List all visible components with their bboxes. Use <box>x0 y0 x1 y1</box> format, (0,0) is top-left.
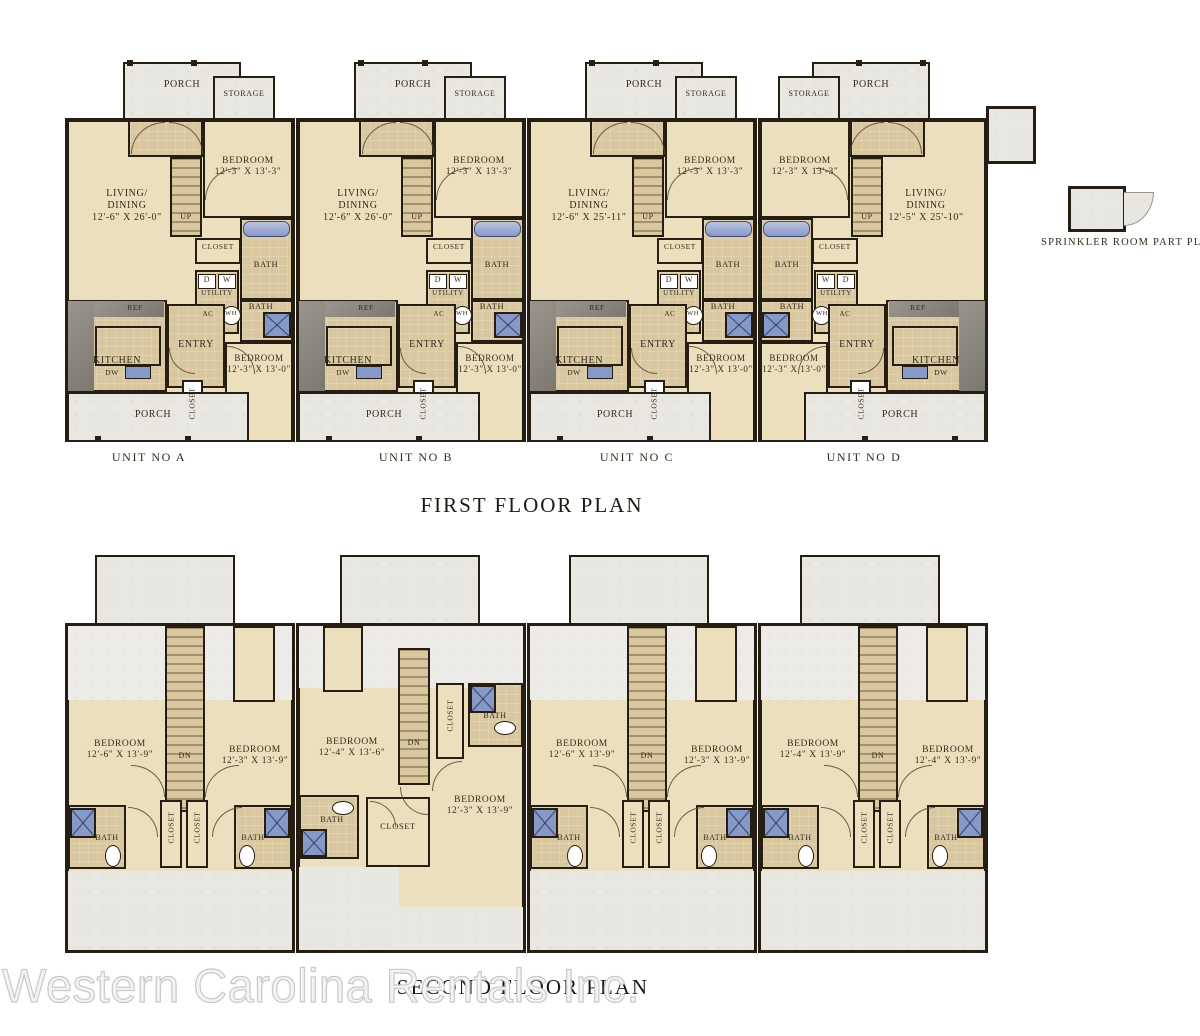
porch-rear-label: PORCH <box>309 409 459 421</box>
porch-rear-label-line: PORCH <box>540 409 690 421</box>
bedroom-wing <box>233 626 275 702</box>
dw-label: DW <box>37 368 187 377</box>
bedroom-left-label-line: BEDROOM <box>45 739 195 750</box>
closet-lower-label-line: CLOSET <box>323 821 473 831</box>
utility-label-line: UTILITY <box>373 289 523 297</box>
ref-label-line: REF <box>291 303 441 312</box>
porch-post <box>589 60 595 66</box>
attic-space <box>68 626 165 700</box>
door-arc <box>1124 192 1154 226</box>
bedroom-1-label-line: 12'-3" X 13'-3" <box>730 167 880 178</box>
bedroom-left-label-line: BEDROOM <box>507 739 657 750</box>
washer-label: W <box>614 275 764 285</box>
utility-label: UTILITY <box>604 289 754 297</box>
living-dining-label-line: LIVING/ <box>851 188 1001 200</box>
sprinkler-room-part-plan: SPRINKLER ROOM PART PLAN <box>1050 178 1200 278</box>
bedroom-2-label-line: 12'-3" X 13'-0" <box>719 364 869 375</box>
porch-post <box>952 436 958 442</box>
ref-label-line: REF <box>843 303 993 312</box>
bedroom-1-label: BEDROOM12'-3" X 13'-3" <box>730 156 880 179</box>
closet-left-label: CLOSET <box>167 753 176 903</box>
bathtub <box>705 221 752 237</box>
bedroom-left-label-line: BEDROOM <box>738 739 888 750</box>
kitchen-label-line: KITCHEN <box>861 355 1011 367</box>
unit-caption-A: UNIT NO A <box>49 450 249 465</box>
porch-post <box>920 60 926 66</box>
attic-space <box>530 626 627 700</box>
roof-lower <box>299 867 399 950</box>
roof-lower <box>761 871 985 950</box>
kitchen-label-line: KITCHEN <box>273 355 423 367</box>
utility-label: UTILITY <box>142 289 292 297</box>
up-label: UP <box>792 212 942 222</box>
bath-left-label-line: BATH <box>494 833 644 843</box>
porch-post <box>422 60 428 66</box>
living-dining-label-line: DINING <box>283 200 433 212</box>
living-dining-label-line: LIVING/ <box>514 188 664 200</box>
kitchen-counter <box>530 301 556 391</box>
kitchen-label: KITCHEN <box>861 355 1011 367</box>
closet-1-label-line: CLOSET <box>374 242 524 251</box>
closet-1-label: CLOSET <box>143 242 293 251</box>
porch-post <box>127 60 133 66</box>
porch-post <box>95 436 101 442</box>
unit-caption-C: UNIT NO C <box>537 450 737 465</box>
watermark: Western Carolina Rentals Inc. <box>2 958 762 1013</box>
kitchen-counter <box>68 301 94 391</box>
closet-right-label: CLOSET <box>655 753 664 903</box>
bedroom-wing <box>695 626 737 702</box>
dn-label-line: DN <box>339 738 489 748</box>
toilet <box>239 845 255 867</box>
bath-left-label-line: BATH <box>32 833 182 843</box>
bedroom-2-label: BEDROOM12'-3" X 13'-0" <box>719 353 869 375</box>
up-label-line: UP <box>342 212 492 222</box>
closet-right-label-line: CLOSET <box>193 753 202 903</box>
porch-post <box>326 436 332 442</box>
kitchen-label-line: KITCHEN <box>504 355 654 367</box>
bath-left-label: BATH <box>725 833 875 843</box>
bath-left-label: BATH <box>494 833 644 843</box>
shower <box>470 685 496 713</box>
dw-label-line: DW <box>866 368 1016 377</box>
storage-label: STORAGE <box>734 89 884 99</box>
bath-left-label: BATH <box>32 833 182 843</box>
sprinkler-label-line2: PART PLAN <box>1153 237 1200 248</box>
porch-rear-label: PORCH <box>825 409 975 421</box>
dn-label: DN <box>572 751 722 761</box>
storage-label-line: STORAGE <box>400 89 550 99</box>
closet-1-label-line: CLOSET <box>605 242 755 251</box>
living-dining-label-line: LIVING/ <box>52 188 202 200</box>
bathtub <box>763 221 810 237</box>
washer-label-line: W <box>614 275 764 285</box>
closet-left-label-line: CLOSET <box>629 753 638 903</box>
ref-label: REF <box>60 303 210 312</box>
living-dining-label-line: DINING <box>514 200 664 212</box>
washer-label-line: W <box>152 275 302 285</box>
dn-label-line: DN <box>110 751 260 761</box>
washer-label: W <box>751 275 901 285</box>
roof-dormer <box>340 555 480 625</box>
bath-left-label-line: BATH <box>725 833 875 843</box>
porch-rear-label-line: PORCH <box>78 409 228 421</box>
kitchen-label: KITCHEN <box>504 355 654 367</box>
unit-caption-D: UNIT NO D <box>764 450 964 465</box>
dw-label: DW <box>866 368 1016 377</box>
sprinkler-label: SPRINKLER ROOM PART PLAN <box>1025 236 1200 251</box>
closet-1-label: CLOSET <box>605 242 755 251</box>
utility-label: UTILITY <box>761 289 911 297</box>
kitchen-label: KITCHEN <box>42 355 192 367</box>
porch-post <box>191 60 197 66</box>
shower <box>301 829 327 857</box>
up-label-line: UP <box>792 212 942 222</box>
closet-1-label: CLOSET <box>374 242 524 251</box>
porch-post <box>856 60 862 66</box>
washer-label-line: W <box>383 275 533 285</box>
first-floor-title: FIRST FLOOR PLAN <box>332 493 732 518</box>
living-dining-label-line: DINING <box>851 200 1001 212</box>
porch-rear-label-line: PORCH <box>309 409 459 421</box>
bedroom-wing <box>926 626 968 702</box>
utility-label-line: UTILITY <box>604 289 754 297</box>
utility-label: UTILITY <box>373 289 523 297</box>
ref-label: REF <box>522 303 672 312</box>
ref-label-line: REF <box>60 303 210 312</box>
closet-1-label-line: CLOSET <box>760 242 910 251</box>
porch-post <box>358 60 364 66</box>
kitchen-counter <box>959 301 985 391</box>
dn-label: DN <box>110 751 260 761</box>
roof-dormer <box>569 555 709 625</box>
up-label: UP <box>573 212 723 222</box>
closet-left-label: CLOSET <box>860 753 869 903</box>
storage-label-line: STORAGE <box>169 89 319 99</box>
utility-label-line: UTILITY <box>761 289 911 297</box>
up-label-line: UP <box>573 212 723 222</box>
bedroom-1-label-line: BEDROOM <box>730 156 880 167</box>
floor-plan-canvas: PORCHSTORAGEBEDROOM12'-3" X 13'-3"LIVING… <box>0 0 1200 1036</box>
ref-label-line: REF <box>522 303 672 312</box>
sprinkler-room-outline <box>1068 186 1126 232</box>
bath-1-label-line: BATH <box>712 259 862 269</box>
living-dining-label-line: DINING <box>52 200 202 212</box>
bath-1-label: BATH <box>712 259 862 269</box>
dn-label-line: DN <box>572 751 722 761</box>
dn-label-line: DN <box>803 751 953 761</box>
closet-1-label-line: CLOSET <box>143 242 293 251</box>
kitchen-label-line: KITCHEN <box>42 355 192 367</box>
roof-lower <box>68 871 292 950</box>
kitchen-label: KITCHEN <box>273 355 423 367</box>
washer-label-line: W <box>751 275 901 285</box>
toilet <box>701 845 717 867</box>
toilet <box>105 845 121 867</box>
closet-lower-label: CLOSET <box>323 821 473 831</box>
closet-right-label-line: CLOSET <box>886 753 895 903</box>
sprinkler-room <box>986 106 1036 164</box>
roof-dormer <box>800 555 940 625</box>
sprinkler-label-line1: SPRINKLER ROOM <box>1041 237 1149 248</box>
up-label: UP <box>111 212 261 222</box>
closet-right-label: CLOSET <box>193 753 202 903</box>
toilet <box>332 801 354 815</box>
ref-label: REF <box>843 303 993 312</box>
storage-label: STORAGE <box>169 89 319 99</box>
toilet <box>567 845 583 867</box>
closet-right-label-line: CLOSET <box>655 753 664 903</box>
dw-label-line: DW <box>499 368 649 377</box>
closet-left-label-line: CLOSET <box>167 753 176 903</box>
up-label: UP <box>342 212 492 222</box>
closet-right-label: CLOSET <box>886 753 895 903</box>
washer-label: W <box>383 275 533 285</box>
utility-label-line: UTILITY <box>142 289 292 297</box>
toilet <box>494 721 516 735</box>
closet-left-label-line: CLOSET <box>860 753 869 903</box>
kitchen-counter <box>299 301 325 391</box>
living-dining-label-line: LIVING/ <box>283 188 433 200</box>
dn-label: DN <box>339 738 489 748</box>
porch-post <box>653 60 659 66</box>
washer-label: W <box>152 275 302 285</box>
porch-rear-label-line: PORCH <box>825 409 975 421</box>
closet-left-label: CLOSET <box>629 753 638 903</box>
storage-label-line: STORAGE <box>734 89 884 99</box>
bedroom-2-label-line: BEDROOM <box>719 353 869 364</box>
roof-dormer <box>95 555 235 625</box>
porch-post <box>557 436 563 442</box>
up-label-line: UP <box>111 212 261 222</box>
porch-rear-label: PORCH <box>78 409 228 421</box>
dw-label-line: DW <box>37 368 187 377</box>
dn-label: DN <box>803 751 953 761</box>
dw-label-line: DW <box>268 368 418 377</box>
porch-rear-label: PORCH <box>540 409 690 421</box>
toilet <box>932 845 948 867</box>
bedroom-left-label-line: 12'-4" X 13'-6" <box>277 748 427 759</box>
roof-lower <box>530 871 754 950</box>
ref-label: REF <box>291 303 441 312</box>
toilet <box>798 845 814 867</box>
unit-caption-B: UNIT NO B <box>316 450 516 465</box>
storage-label: STORAGE <box>400 89 550 99</box>
dw-label: DW <box>499 368 649 377</box>
bedroom-wing <box>323 626 363 692</box>
roof-lower <box>399 907 523 950</box>
dw-label: DW <box>268 368 418 377</box>
closet-1-label: CLOSET <box>760 242 910 251</box>
attic-space <box>761 626 858 700</box>
